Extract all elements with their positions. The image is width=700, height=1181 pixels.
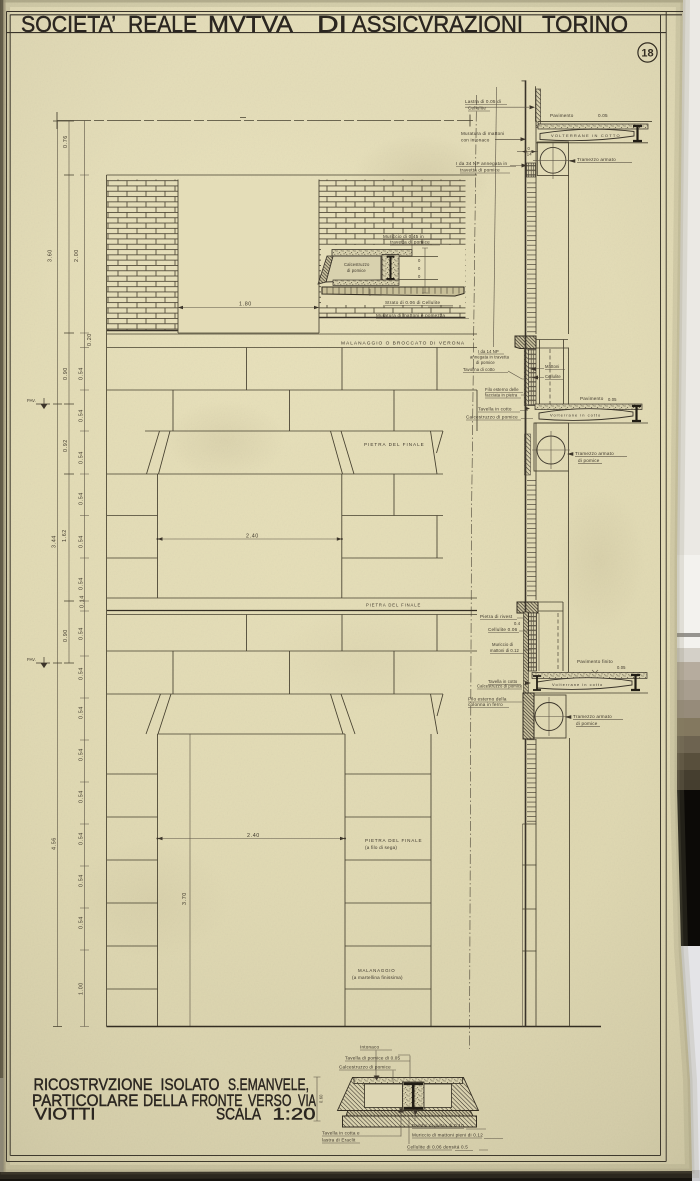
svg-text:Calcestruzzo di pomice: Calcestruzzo di pomice: [466, 415, 518, 420]
svg-text:0.05: 0.05: [598, 113, 608, 118]
svg-text:0.14: 0.14: [80, 595, 86, 608]
svg-text:facciata in pietra: facciata in pietra: [485, 393, 518, 398]
svg-text:SOCIETA’: SOCIETA’: [21, 11, 116, 37]
svg-text:DI: DI: [317, 11, 347, 37]
svg-text:travetta di pomice: travetta di pomice: [390, 240, 430, 245]
svg-text:DELLA: DELLA: [143, 1091, 188, 1110]
svg-text:travetta di pomice: travetta di pomice: [460, 168, 500, 173]
svg-text:3.70: 3.70: [182, 892, 188, 905]
svg-text:di pomice: di pomice: [576, 721, 598, 726]
svg-text:Intonaco: Intonaco: [360, 1045, 379, 1050]
svg-text:1.80: 1.80: [239, 302, 252, 308]
svg-text:0.54: 0.54: [79, 790, 85, 803]
svg-text:2.00: 2.00: [74, 249, 80, 262]
svg-text:0.54: 0.54: [79, 748, 85, 761]
svg-text:Strato di 0.06 di Cellulite: Strato di 0.06 di Cellulite: [385, 300, 440, 305]
svg-text:0.90: 0.90: [63, 367, 69, 380]
svg-text:PIETRA DEL FINALE: PIETRA DEL FINALE: [365, 838, 422, 843]
svg-text:con intonaco: con intonaco: [461, 138, 490, 143]
svg-text:Cellulite di 0.06 densitá 0.5: Cellulite di 0.06 densitá 0.5: [407, 1145, 468, 1150]
svg-text:0.54: 0.54: [79, 492, 85, 505]
svg-text:1.00: 1.00: [79, 982, 85, 995]
svg-text:MVTVA: MVTVA: [208, 11, 293, 37]
svg-text:0.54: 0.54: [79, 667, 85, 680]
svg-text:Pietra di rivest: Pietra di rivest: [480, 614, 513, 619]
svg-text:0.90: 0.90: [63, 629, 69, 642]
svg-text:Mattoni: Mattoni: [545, 364, 559, 369]
svg-text:(a filo di sega): (a filo di sega): [365, 845, 397, 850]
svg-text:Cellulite: Cellulite: [468, 106, 486, 111]
svg-text:1.62: 1.62: [62, 529, 68, 542]
svg-text:di pomice: di pomice: [347, 268, 366, 273]
svg-text:PIETRA DEL FINALE: PIETRA DEL FINALE: [366, 603, 421, 608]
svg-text:Pavimento: Pavimento: [550, 113, 574, 118]
svg-text:PIETRA DEL FINALE: PIETRA DEL FINALE: [364, 442, 425, 447]
svg-text:SCALA: SCALA: [216, 1105, 262, 1124]
svg-text:0.60: 0.60: [319, 1094, 324, 1103]
svg-text:Lastra di 0.05 di: Lastra di 0.05 di: [465, 99, 501, 104]
svg-text:0.54: 0.54: [79, 706, 85, 719]
svg-text:0.54: 0.54: [79, 451, 85, 464]
svg-text:PAV.: PAV.: [27, 657, 36, 662]
svg-text:1:20: 1:20: [273, 1105, 316, 1124]
svg-text:14: 14: [527, 152, 532, 157]
svg-text:MALANAGGIO O BROCCATO DI VERON: MALANAGGIO O BROCCATO DI VERONA: [341, 341, 465, 347]
svg-text:Tavella in cotta e: Tavella in cotta e: [322, 1131, 360, 1136]
svg-text:0.54: 0.54: [79, 916, 85, 929]
svg-text:0.76: 0.76: [63, 135, 69, 148]
svg-text:di pomice: di pomice: [578, 458, 600, 463]
svg-text:Muriccio di mattoni pieni di 0: Muriccio di mattoni pieni di 0.12: [412, 1133, 483, 1138]
svg-text:I da 34 NP annegata in: I da 34 NP annegata in: [456, 161, 508, 166]
svg-text:0.54: 0.54: [79, 832, 85, 845]
svg-text:VIOTTI: VIOTTI: [35, 1105, 96, 1124]
svg-text:2.40: 2.40: [246, 534, 259, 540]
svg-text:Cellulite 0.06: Cellulite 0.06: [488, 627, 518, 632]
svg-text:0.54: 0.54: [79, 409, 85, 422]
svg-text:Volterrane in cotto: Volterrane in cotto: [550, 413, 601, 418]
svg-text:REALE: REALE: [128, 11, 197, 37]
svg-text:0.54: 0.54: [79, 577, 85, 590]
svg-text:0.54: 0.54: [79, 367, 85, 380]
svg-text:Muriccio di: Muriccio di: [492, 642, 513, 647]
svg-text:Muriccio di 0.45 in: Muriccio di 0.45 in: [383, 234, 424, 239]
svg-text:Pavimento finito: Pavimento finito: [577, 659, 613, 664]
svg-text:annegata in travetta: annegata in travetta: [470, 355, 510, 360]
svg-text:0.54: 0.54: [79, 874, 85, 887]
svg-text:Calcestruzzo di pomice: Calcestruzzo di pomice: [339, 1065, 391, 1070]
svg-text:Cellulite: Cellulite: [545, 374, 561, 379]
svg-text:Muratura di mattoni: Muratura di mattoni: [461, 131, 504, 136]
svg-text:0.54: 0.54: [79, 535, 85, 548]
svg-text:Muratura di mattoni e pomezza: Muratura di mattoni e pomezza: [376, 313, 445, 318]
svg-text:18: 18: [641, 48, 653, 60]
svg-text:4.56: 4.56: [52, 837, 58, 850]
svg-text:Filo esterno della: Filo esterno della: [468, 697, 507, 702]
svg-text:I da 14 NP: I da 14 NP: [478, 349, 499, 354]
svg-text:Filo esterno delle: Filo esterno delle: [485, 387, 519, 392]
svg-text:Tramezzo armato: Tramezzo armato: [573, 714, 612, 719]
svg-text:MALANAGGIO: MALANAGGIO: [358, 968, 396, 973]
svg-text:mattoni di 0.12: mattoni di 0.12: [490, 648, 520, 653]
svg-text:colonna in ferro: colonna in ferro: [468, 702, 503, 707]
svg-text:Tavella in cotto: Tavella in cotto: [478, 407, 512, 412]
svg-text:2.40: 2.40: [247, 833, 260, 839]
svg-text:Tramezzo armato: Tramezzo armato: [577, 157, 616, 162]
svg-text:Tavella di pomice di 0.05: Tavella di pomice di 0.05: [345, 1056, 401, 1061]
svg-text:0.05: 0.05: [608, 397, 617, 402]
svg-text:Pavimento: Pavimento: [580, 396, 604, 401]
svg-text:0.05: 0.05: [617, 665, 626, 670]
svg-text:(a martellina finissima): (a martellina finissima): [352, 975, 403, 980]
svg-text:0.4: 0.4: [514, 621, 521, 626]
svg-text:VOLTERRANE IN COTTO: VOLTERRANE IN COTTO: [551, 133, 621, 138]
svg-text:ASSICVRAZIONI: ASSICVRAZIONI: [352, 11, 523, 37]
svg-text:3.60: 3.60: [48, 249, 54, 262]
svg-text:Tramezzo armato: Tramezzo armato: [575, 451, 614, 456]
svg-text:3.44: 3.44: [52, 535, 58, 548]
svg-text:lastra di Eraclit: lastra di Eraclit: [322, 1138, 356, 1143]
svg-text:0.54: 0.54: [79, 627, 85, 640]
svg-text:TORINO: TORINO: [542, 11, 628, 37]
svg-text:Volterrane in cotto: Volterrane in cotto: [552, 682, 603, 687]
svg-text:Calcestruzzo di pomice: Calcestruzzo di pomice: [477, 684, 523, 689]
svg-text:Bambo di pietra di 0.10: Bambo di pietra di 0.10: [412, 1123, 464, 1128]
svg-text:0.20: 0.20: [87, 333, 93, 346]
svg-text:PAV.: PAV.: [27, 398, 36, 403]
svg-text:Calcestruzzo: Calcestruzzo: [344, 262, 370, 267]
svg-text:Tavolina di cotto: Tavolina di cotto: [463, 367, 495, 372]
svg-text:di pomice: di pomice: [476, 360, 495, 365]
svg-text:0.92: 0.92: [63, 439, 69, 452]
